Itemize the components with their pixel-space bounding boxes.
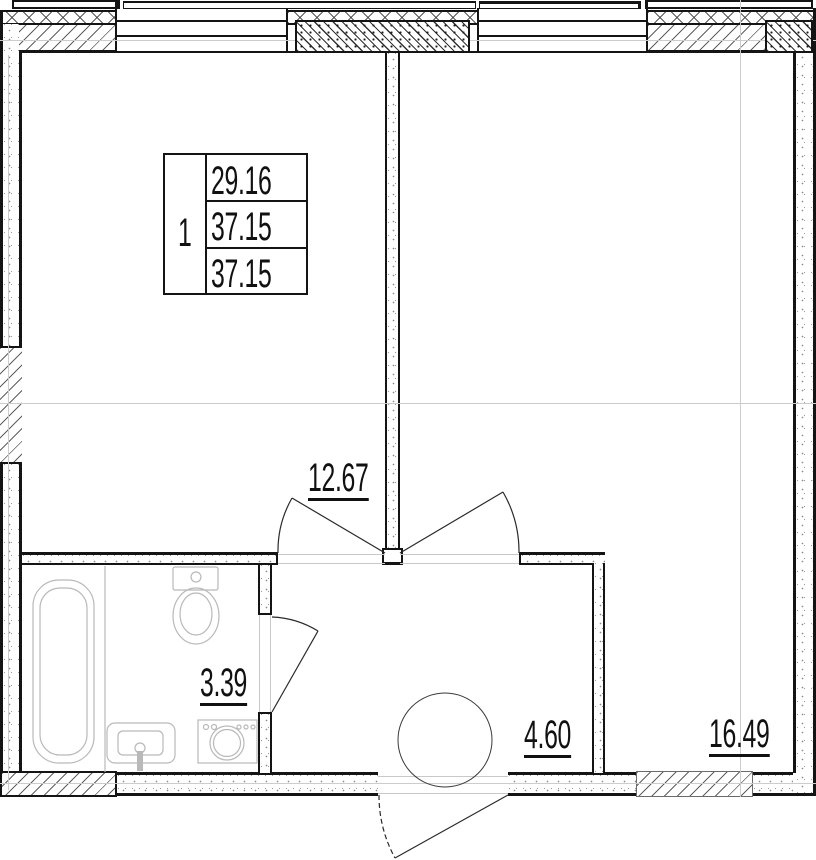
wall-line xyxy=(115,8,117,20)
wall-line xyxy=(470,51,477,53)
railing-segment xyxy=(12,0,120,9)
plan-overlay xyxy=(0,0,816,860)
wall-hatch-block xyxy=(636,771,753,797)
area-value: 29.16 xyxy=(211,161,272,201)
area-value: 37.15 xyxy=(211,207,272,247)
toilet-icon xyxy=(173,567,219,644)
wall-segment xyxy=(3,464,19,773)
door-swing-bedroom xyxy=(400,492,519,553)
wall-hatch-block xyxy=(0,346,22,464)
unit-number: 1 xyxy=(178,213,191,253)
hallway-wall xyxy=(592,563,605,773)
bathroom-wall xyxy=(258,565,272,615)
threshold-line xyxy=(278,554,385,555)
threshold-line xyxy=(259,615,260,712)
wall-line xyxy=(19,464,22,773)
area-value: 37.15 xyxy=(211,254,272,294)
wall-hatch-block xyxy=(0,771,117,797)
info-table: 1 29.16 37.15 37.15 xyxy=(163,153,308,295)
wall-line xyxy=(286,8,288,20)
axis-line xyxy=(8,55,9,790)
wall-line xyxy=(19,53,22,348)
window-1 xyxy=(115,20,288,53)
wall-segment xyxy=(753,772,793,796)
sink-icon xyxy=(107,723,175,771)
door-swing-bathroom xyxy=(272,617,318,712)
room-label-living-room: 12.67 xyxy=(308,458,369,501)
threshold-line xyxy=(270,615,271,712)
railing-segment xyxy=(123,1,476,9)
wall-segment xyxy=(648,25,765,53)
room-label-bathroom: 3.39 xyxy=(200,663,247,706)
wall-segment xyxy=(508,772,636,796)
railing-segment xyxy=(479,1,641,9)
bathroom-wall xyxy=(258,712,272,773)
wall-line xyxy=(288,51,295,53)
threshold-line xyxy=(278,563,385,564)
washing-machine-icon xyxy=(198,720,257,763)
threshold-line xyxy=(378,776,508,777)
window-frame-line xyxy=(479,35,646,37)
room-label-bedroom: 16.49 xyxy=(709,714,770,757)
wall-line xyxy=(477,8,479,20)
partition-wall xyxy=(385,53,400,548)
bathroom-wall xyxy=(22,552,278,565)
wall-segment xyxy=(117,772,378,796)
axis-line xyxy=(0,783,816,784)
wall-pier xyxy=(295,20,470,53)
water-heater-icon xyxy=(398,693,492,787)
door-swing-entrance xyxy=(379,795,508,858)
door-swing-living-room xyxy=(278,498,385,553)
info-table-divider xyxy=(205,155,207,293)
wall-segment xyxy=(0,10,115,25)
room-label-hallway: 4.60 xyxy=(524,715,571,758)
railing-segment xyxy=(645,0,813,9)
wall-line xyxy=(646,8,648,20)
bathtub-icon xyxy=(33,566,105,772)
window-2 xyxy=(477,20,648,53)
axis-line xyxy=(0,403,816,404)
axis-line xyxy=(740,0,741,797)
wall-line xyxy=(793,793,816,796)
threshold-line xyxy=(378,793,508,794)
wall-segment xyxy=(796,51,813,793)
window-frame-line xyxy=(117,35,286,37)
floor-plan: 1 29.16 37.15 37.15 12.67 3.39 4.60 16.4… xyxy=(0,0,816,860)
threshold-line xyxy=(400,563,519,564)
wall-pier xyxy=(765,20,813,53)
threshold-line xyxy=(400,554,519,555)
wall-segment xyxy=(3,24,19,348)
